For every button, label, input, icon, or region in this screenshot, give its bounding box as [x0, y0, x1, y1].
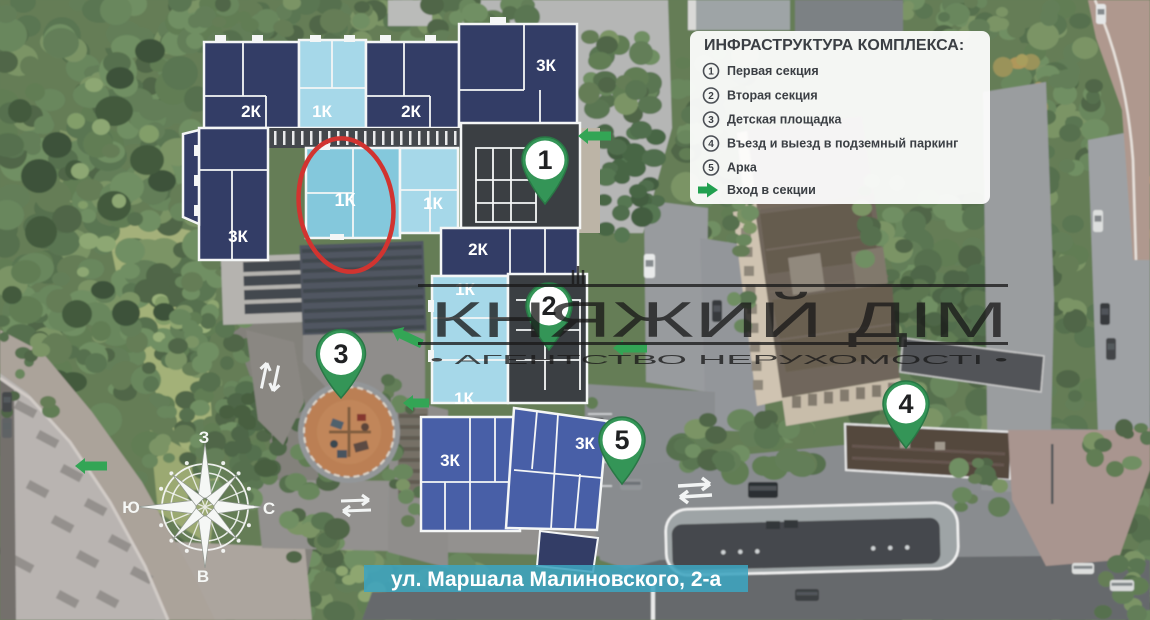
svg-text:3: 3 [708, 115, 714, 126]
svg-text:Вторая секция: Вторая секция [727, 89, 818, 103]
svg-text:4: 4 [708, 139, 714, 150]
svg-text:5: 5 [708, 163, 714, 174]
svg-text:ул. Маршала Малиновского, 2-а: ул. Маршала Малиновского, 2-а [391, 568, 722, 591]
svg-text:2: 2 [708, 91, 714, 102]
svg-text:Детская площадка: Детская площадка [727, 113, 843, 127]
svg-text:Арка: Арка [727, 161, 758, 175]
svg-text:Вход в секции: Вход в секции [727, 183, 816, 197]
svg-text:ИНФРАСТРУКТУРА КОМПЛЕКСА:: ИНФРАСТРУКТУРА КОМПЛЕКСА: [704, 37, 964, 54]
svg-text:1: 1 [708, 67, 714, 78]
svg-text:Въезд и выезд в подземный парк: Въезд и выезд в подземный паркинг [727, 137, 958, 151]
svg-text:Первая секция: Первая секция [727, 64, 819, 78]
